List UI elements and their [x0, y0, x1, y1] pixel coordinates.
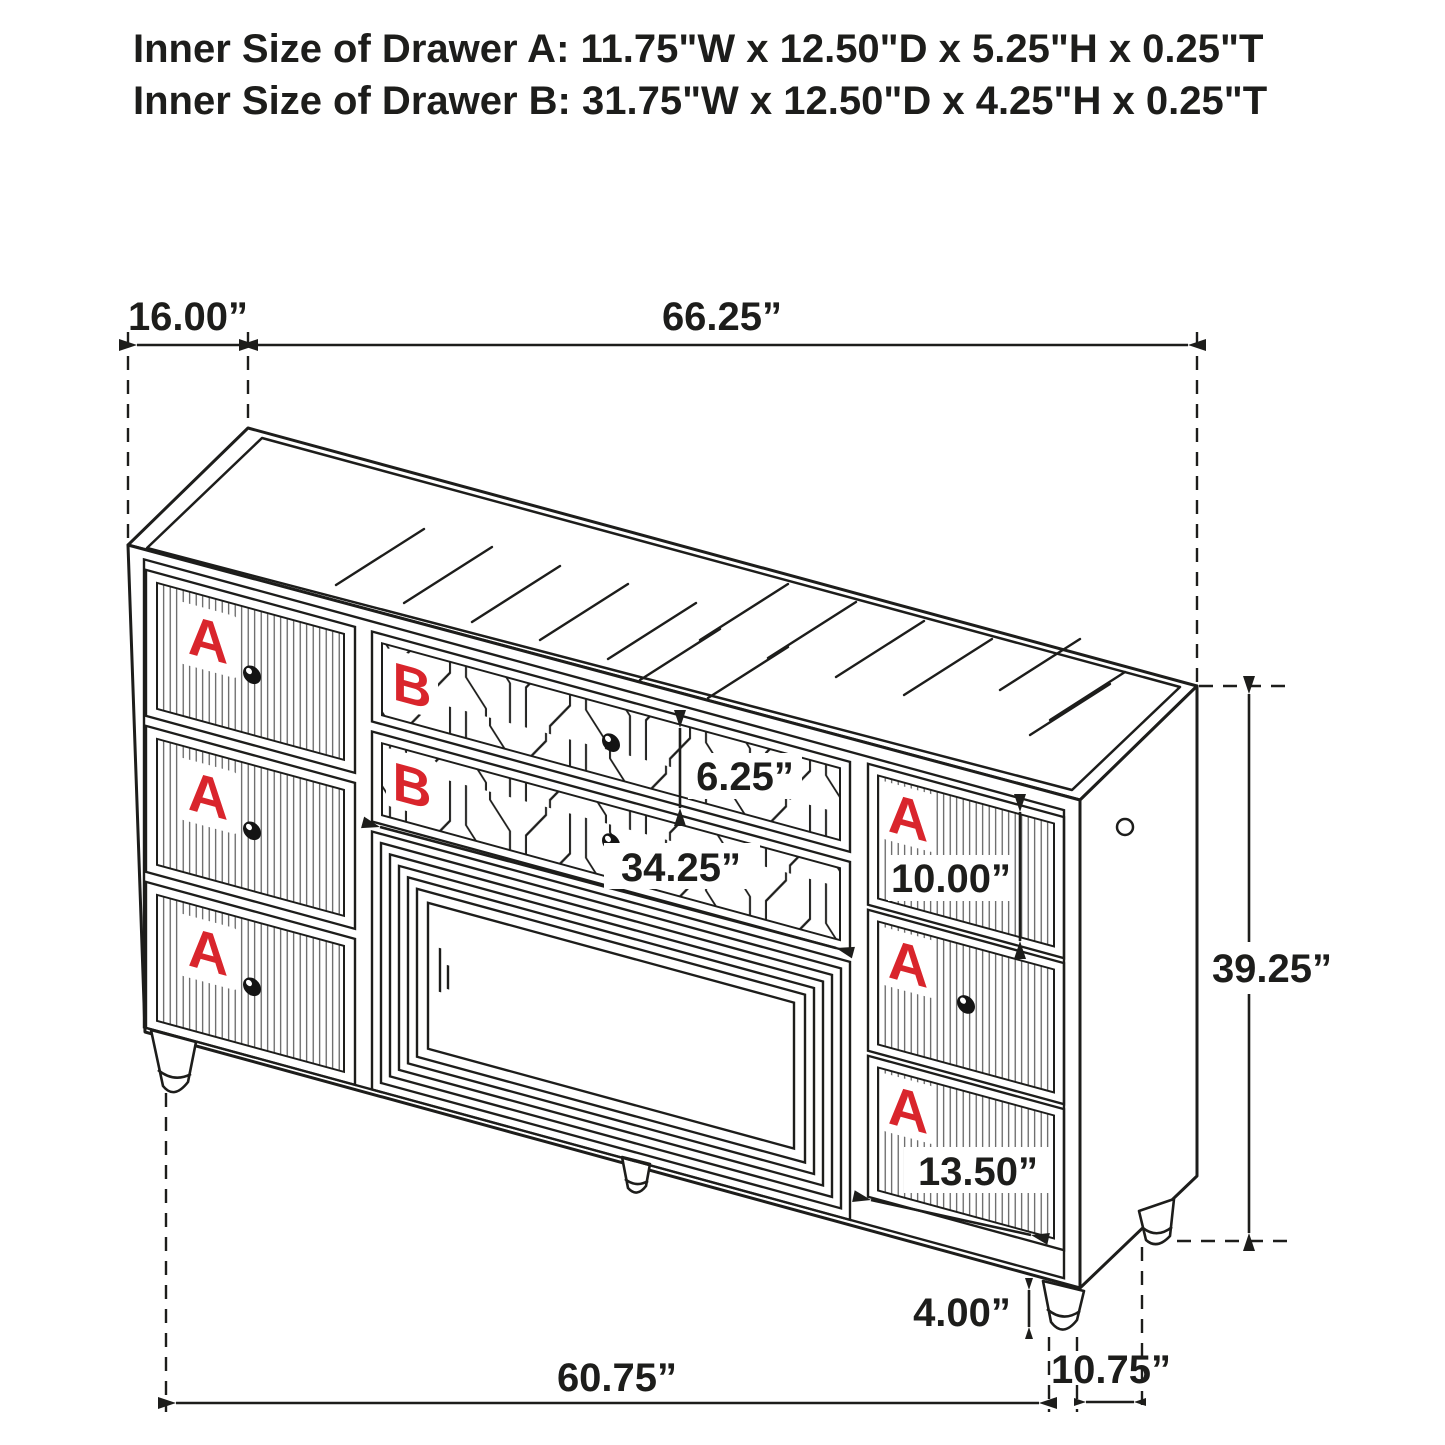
dim-drawer-b-width-label: 34.25” — [621, 846, 741, 890]
drawer-b-letter: B — [392, 750, 431, 822]
furniture-dimension-diagram: Inner Size of Drawer A: 11.75"W x 12.50"… — [0, 0, 1445, 1445]
dim-depth-top: 16.00” — [128, 295, 248, 345]
dim-base-depth-label: 10.75” — [1051, 1348, 1171, 1392]
dim-leg-height-label: 4.00” — [913, 1291, 1011, 1335]
diagram-svg: Inner Size of Drawer A: 11.75"W x 12.50"… — [0, 0, 1445, 1445]
header-line-2: Inner Size of Drawer B: 31.75"W x 12.50"… — [133, 79, 1267, 123]
dim-depth-top-label: 16.00” — [128, 295, 248, 339]
drawer-a-letter: A — [188, 915, 228, 989]
drawer-a-letter: A — [188, 603, 228, 677]
dim-drawer-b-height-label: 6.25” — [696, 755, 794, 799]
dim-drawer-right-height-label: 10.00” — [891, 857, 1011, 901]
dim-width-top-label: 66.25” — [662, 295, 782, 339]
dim-drawer-right-width-label: 13.50” — [918, 1150, 1038, 1194]
drawer-a-letter: A — [888, 781, 928, 855]
drawer-a-letter: A — [888, 927, 928, 1001]
dim-overall-height-label: 39.25” — [1212, 947, 1332, 991]
drawer-b-letter: B — [392, 650, 431, 722]
drawer-a-letter: A — [188, 759, 228, 833]
drawer-a-letter: A — [888, 1073, 928, 1147]
dim-base-width-label: 60.75” — [557, 1356, 677, 1400]
header-line-1: Inner Size of Drawer A: 11.75"W x 12.50"… — [133, 27, 1263, 71]
